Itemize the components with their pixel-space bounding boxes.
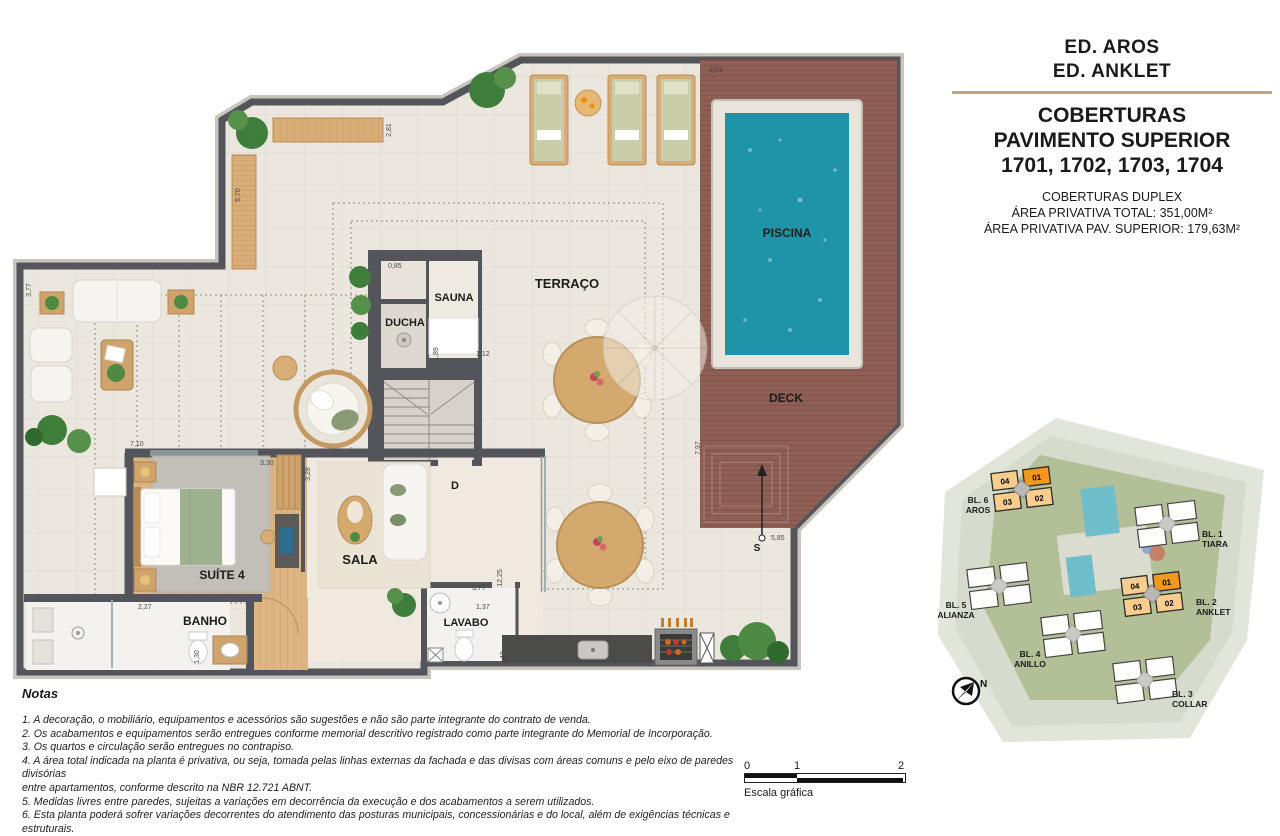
plant [387, 588, 403, 604]
notes-heading: Notas [22, 686, 746, 701]
plant [45, 296, 59, 310]
toilet-tank [456, 630, 473, 637]
block-label-bl6-name: AROS [966, 505, 991, 515]
sauna-block [368, 250, 482, 374]
block-label-bl1-name: TIARA [1202, 539, 1228, 549]
block-label-bl1: BL. 1 [1202, 529, 1223, 539]
block-label-bl4-name: ANILLO [1014, 659, 1046, 669]
armchair [31, 366, 72, 402]
floor-plan: PISCINA TERRAÇO DECK SAUNA DUCHA SALA SU… [0, 0, 920, 700]
note-item-3: 3. Os quartos e circulação serão entregu… [22, 741, 746, 755]
plant [174, 295, 188, 309]
dimension-label: 12,25 [497, 569, 504, 587]
room-label-banho: BANHO [183, 614, 227, 628]
dimension-label: 1,89 [433, 347, 440, 361]
bush [25, 428, 43, 446]
umbrella [603, 296, 707, 400]
stair-door-label: D [451, 480, 459, 492]
site-keyplan: 04 01 03 02 04 01 03 02 [925, 400, 1280, 755]
room-label-deck: DECK [769, 391, 803, 405]
plant [351, 295, 371, 315]
blanket [180, 489, 222, 565]
building-name-2: ED. ANKLET [950, 60, 1274, 84]
plant [349, 266, 371, 288]
room-label-sauna: SAUNA [434, 292, 473, 304]
room-label-piscina: PISCINA [763, 226, 812, 240]
dimension-label: 2,81 [386, 123, 393, 137]
bush [67, 429, 91, 453]
papasan-chair [296, 372, 370, 446]
dimension-label: 1,12 [476, 351, 490, 358]
unit-number: 03 [1133, 602, 1143, 612]
note-item-6: 6. Esta planta poderá sofrer variações d… [22, 809, 746, 836]
dimension-label: 1,30 [194, 650, 201, 664]
building-name-1: ED. AROS [950, 36, 1274, 60]
block-label-bl3-name: COLLAR [1172, 699, 1207, 709]
dimension-label: 7,10 [130, 441, 144, 448]
unit-number: 02 [1034, 493, 1044, 503]
unit-number: 03 [1003, 497, 1013, 507]
block-label-bl5-name: ALIANZA [937, 610, 974, 620]
toilet [455, 637, 473, 661]
plant [767, 641, 789, 663]
scale-tick-1: 1 [794, 760, 800, 772]
toilet-tank [189, 632, 207, 640]
terrace-door-leaf [94, 468, 126, 496]
dimension-label: 7,97 [695, 441, 702, 455]
unit-number: 02 [1164, 598, 1174, 608]
site-pool [1066, 555, 1097, 598]
plan-title-units: 1701, 1702, 1703, 1704 [950, 153, 1274, 178]
unit-number: 01 [1162, 578, 1172, 588]
plant [351, 322, 369, 340]
floorplan-page: { "title_block": { "building_1": "ED. AR… [0, 0, 1280, 828]
block-label-bl2: BL. 2 [1196, 597, 1217, 607]
room-label-suite4: SUÍTE 4 [199, 567, 245, 582]
basket [261, 530, 275, 544]
title-block: ED. AROS ED. ANKLET COBERTURAS PAVIMENTO… [950, 36, 1274, 237]
scale-bar-ticks: 0 1 2 [744, 760, 914, 773]
pouf [273, 356, 297, 380]
scale-tick-2: 2 [898, 760, 904, 772]
book [105, 345, 126, 362]
unit-number: 04 [1130, 581, 1140, 591]
block-label-bl3: BL. 3 [1172, 689, 1193, 699]
room-label-ducha: DUCHA [385, 317, 425, 329]
block-label-bl4: BL. 4 [1020, 649, 1041, 659]
dimension-label: 1,43 [500, 651, 507, 665]
vanity-sink [221, 643, 239, 657]
plan-title-line1: COBERTURAS [950, 103, 1274, 128]
plan-subtitle-1: COBERTURAS DUPLEX [950, 189, 1274, 205]
north-label: N [980, 679, 987, 690]
block-label-bl2-name: ANKLET [1196, 607, 1231, 617]
dimension-label: 0,85 [388, 263, 402, 270]
note-item-4: 4. A área total indicada na planta é pri… [22, 755, 746, 796]
counter [502, 635, 652, 663]
south-marker-label: S [754, 543, 761, 554]
unit-number: 04 [1000, 476, 1010, 486]
side-table [575, 90, 601, 116]
notes-section: Notas 1. A decoração, o mobiliário, equi… [22, 686, 746, 836]
scale-bar-label: Escala gráfica [744, 787, 914, 799]
stair-door-gap [438, 458, 472, 468]
room-label-lavabo: LAVABO [444, 617, 489, 629]
plant [107, 364, 125, 382]
accent-rule [952, 91, 1272, 94]
site-pool [1080, 485, 1120, 537]
room-label-terraco: TERRAÇO [535, 276, 599, 291]
plan-subtitle-2: ÁREA PRIVATIVA TOTAL: 351,00M² [950, 205, 1274, 221]
dimension-label: 2,27 [138, 604, 152, 611]
note-item-5: 5. Medidas livres entre paredes, sujeita… [22, 796, 746, 810]
armchair [30, 328, 72, 362]
dimension-label: 3,77 [472, 585, 486, 592]
plant [228, 110, 248, 130]
plan-title-line2: PAVIMENTO SUPERIOR [950, 128, 1274, 153]
sun-loungers [530, 75, 695, 165]
unit-number: 01 [1032, 473, 1042, 483]
scale-bar-rule [744, 773, 906, 783]
plan-subtitle-3: ÁREA PRIVATIVA PAV. SUPERIOR: 179,63M² [950, 221, 1274, 237]
sofa [383, 464, 427, 560]
block-label-bl5: BL. 5 [946, 600, 967, 610]
dimension-label: 9,70 [235, 188, 242, 202]
dimension-label: 3,30 [260, 460, 274, 467]
scale-tick-0: 0 [744, 760, 750, 772]
dimension-label: 3,63 [709, 67, 723, 74]
note-item-2: 2. Os acabamentos e equipamentos serão e… [22, 728, 746, 742]
scale-bar: 0 1 2 Escala gráfica [744, 760, 914, 799]
note-item-1: 1. A decoração, o mobiliário, equipament… [22, 714, 746, 728]
bed-headboard [134, 487, 141, 567]
dimension-label: 5,85 [771, 535, 785, 542]
plant [494, 67, 516, 89]
dimension-label: 3,77 [26, 283, 33, 297]
dimension-label: 1,37 [476, 604, 490, 611]
room-label-sala: SALA [342, 552, 378, 567]
dimension-label: 3,28 [305, 467, 312, 481]
block-label-bl6: BL. 6 [968, 495, 989, 505]
